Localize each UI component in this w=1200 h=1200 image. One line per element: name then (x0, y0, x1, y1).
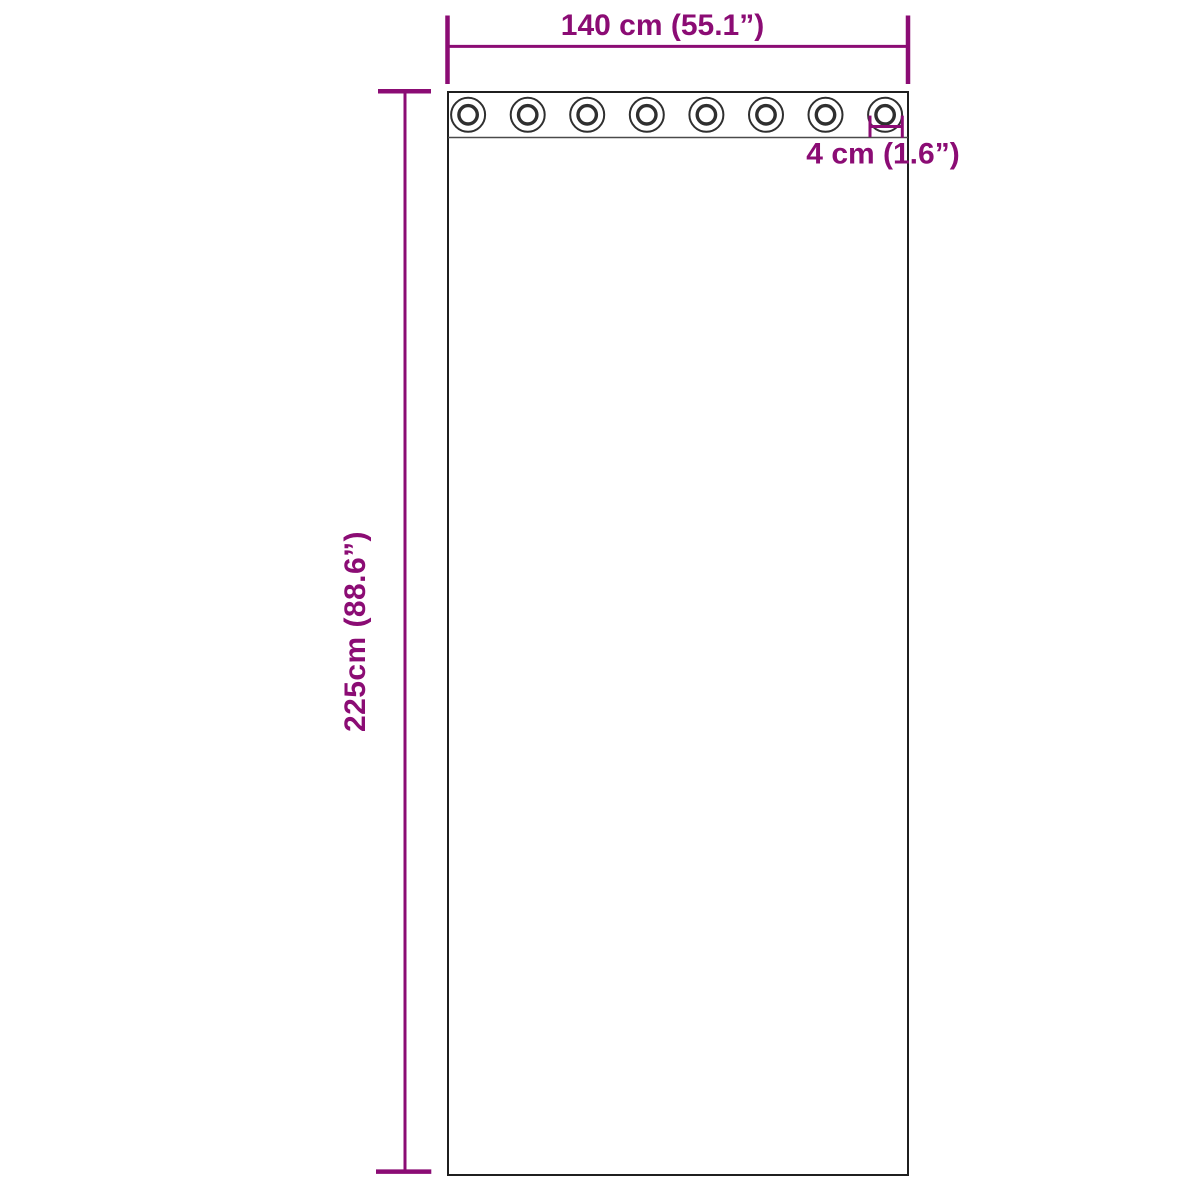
svg-text:225cm (88.6”): 225cm (88.6”) (339, 531, 372, 732)
svg-text:4 cm (1.6”): 4 cm (1.6”) (806, 138, 959, 171)
svg-text:140 cm (55.1”): 140 cm (55.1”) (561, 9, 764, 42)
